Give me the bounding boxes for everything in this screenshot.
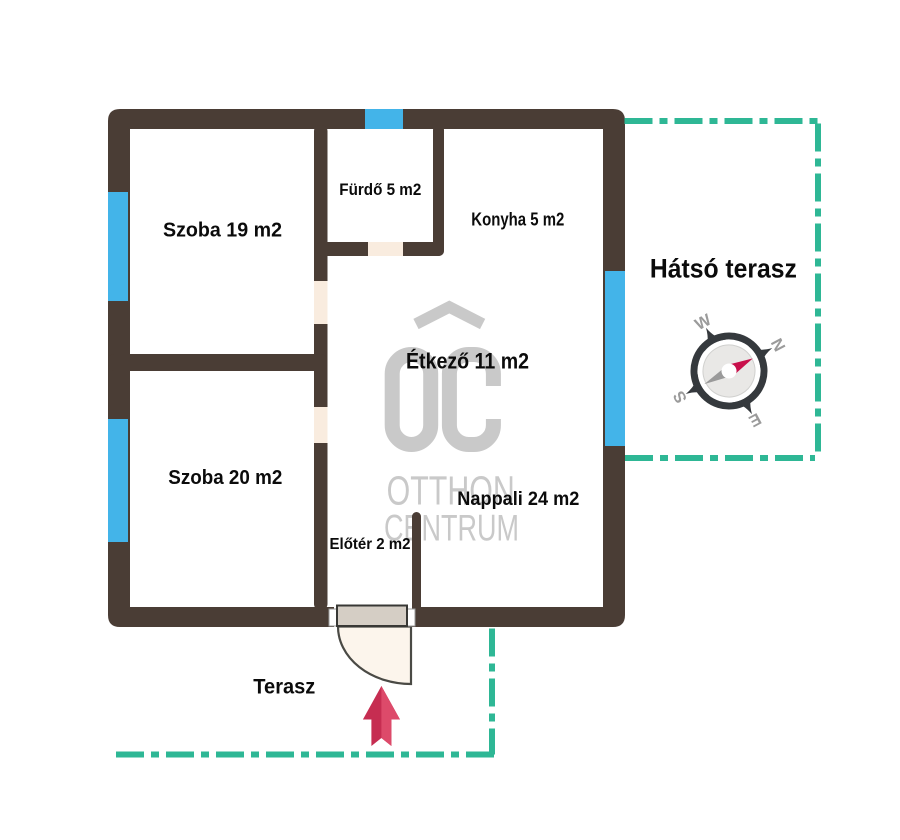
svg-text:Előtér 2 m2: Előtér 2 m2 <box>330 536 411 553</box>
svg-text:Étkező 11 m2: Étkező 11 m2 <box>406 349 529 374</box>
svg-text:Szoba 20 m2: Szoba 20 m2 <box>168 466 282 489</box>
svg-text:Fürdő 5 m2: Fürdő 5 m2 <box>339 181 421 199</box>
svg-text:Szoba 19 m2: Szoba 19 m2 <box>163 220 282 242</box>
svg-text:Nappali 24 m2: Nappali 24 m2 <box>457 489 579 510</box>
svg-text:Konyha 5 m2: Konyha 5 m2 <box>471 210 564 230</box>
svg-text:Terasz: Terasz <box>253 676 315 699</box>
svg-text:Hátsó terasz: Hátsó terasz <box>650 254 797 284</box>
